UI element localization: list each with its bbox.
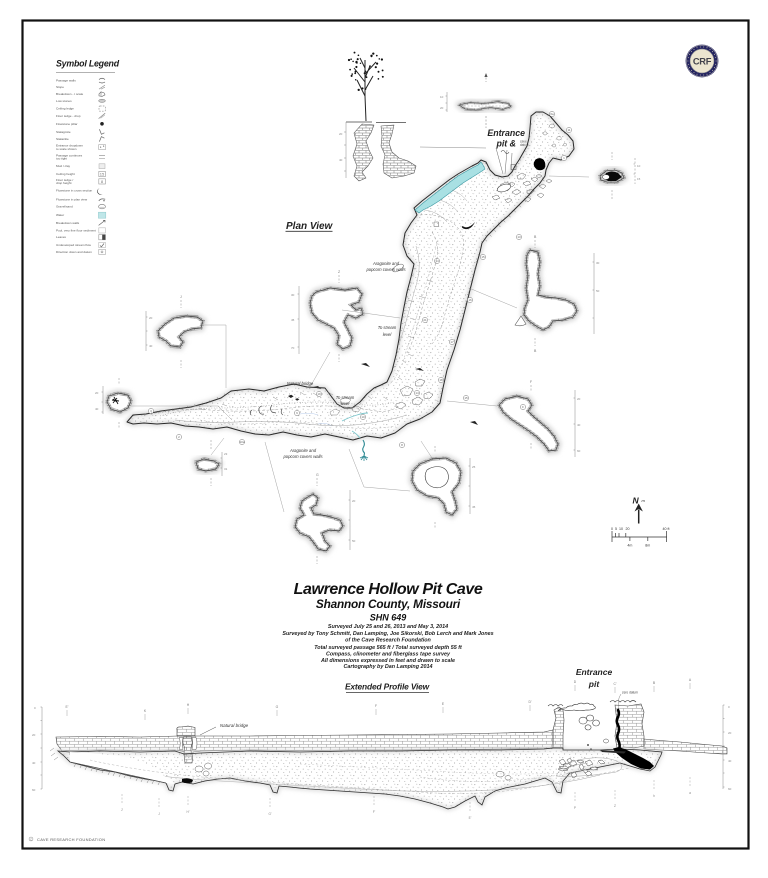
svg-text:10: 10 <box>440 95 444 99</box>
svg-text:N: N <box>633 496 640 506</box>
svg-text:popcorn covers walls: popcorn covers walls <box>365 267 406 272</box>
svg-text:10: 10 <box>619 527 623 531</box>
svg-text:Natural bridge: Natural bridge <box>287 381 314 386</box>
svg-text:of the Cave Research Foundatio: of the Cave Research Foundation <box>345 638 431 644</box>
svg-text:J': J' <box>121 808 124 812</box>
svg-text:too tight: too tight <box>56 157 67 161</box>
svg-text:CAVE RESEARCH FOUNDATION: CAVE RESEARCH FOUNDATION <box>37 837 105 842</box>
svg-text:Low stones: Low stones <box>56 99 72 103</box>
svg-text:C: C <box>30 837 32 841</box>
svg-text:40: 40 <box>95 407 99 411</box>
svg-text:20: 20 <box>577 397 581 401</box>
svg-text:Undeveloped stream flow: Undeveloped stream flow <box>56 243 92 247</box>
svg-text:Extended Profile View: Extended Profile View <box>345 682 430 692</box>
svg-text:E': E' <box>66 705 69 709</box>
svg-text:pit &: pit & <box>495 138 516 148</box>
svg-text:15: 15 <box>637 177 641 181</box>
svg-text:Aragonite and: Aragonite and <box>289 448 317 453</box>
svg-text:Total surveyed passage 565 ft: Total surveyed passage 565 ft / Total su… <box>314 645 462 651</box>
svg-text:50: 50 <box>352 539 356 543</box>
svg-text:P: P <box>574 806 576 810</box>
svg-text:45: 45 <box>472 505 476 509</box>
svg-text:16: 16 <box>468 298 472 302</box>
svg-text:18: 18 <box>439 378 443 382</box>
svg-text:25: 25 <box>472 465 476 469</box>
svg-text:45: 45 <box>291 318 295 322</box>
svg-text:Passage walls: Passage walls <box>56 79 76 83</box>
svg-text:Compass, clinometer and fiberg: Compass, clinometer and fiberglass tape … <box>326 652 451 658</box>
svg-text:40: 40 <box>339 158 343 162</box>
svg-text:SHN 649: SHN 649 <box>370 613 407 623</box>
svg-text:30: 30 <box>291 293 295 297</box>
svg-text:Ceiling height: Ceiling height <box>56 172 75 176</box>
svg-text:Floor ledge - drop: Floor ledge - drop <box>56 114 81 118</box>
svg-text:Mud / clay: Mud / clay <box>56 164 71 168</box>
svg-text:Stalactite: Stalactite <box>56 137 69 141</box>
svg-text:Flowstone in plan view: Flowstone in plan view <box>56 197 88 201</box>
svg-text:4m: 4m <box>627 544 632 548</box>
svg-text:15: 15 <box>464 396 468 400</box>
svg-text:19: 19 <box>317 392 321 396</box>
svg-text:8m: 8m <box>645 544 650 548</box>
svg-text:11: 11 <box>567 128 570 132</box>
svg-text:Entrance: Entrance <box>487 128 525 138</box>
svg-text:H': H' <box>187 810 190 814</box>
svg-text:Shannon County, Missouri: Shannon County, Missouri <box>316 597 461 611</box>
svg-text:40 ft: 40 ft <box>663 527 670 531</box>
svg-text:Water: Water <box>56 213 64 217</box>
svg-text:13: 13 <box>517 235 521 239</box>
svg-text:To stream: To stream <box>336 395 355 400</box>
svg-text:Direction down and datum: Direction down and datum <box>56 250 92 254</box>
svg-text:Pool, very fine floor sediment: Pool, very fine floor sediment <box>56 228 96 232</box>
svg-text:20: 20 <box>339 132 343 136</box>
svg-text:14: 14 <box>415 391 419 395</box>
svg-text:D': D' <box>528 700 531 704</box>
svg-text:a: a <box>689 791 691 795</box>
svg-text:G': G' <box>268 812 271 816</box>
svg-text:21: 21 <box>423 318 427 322</box>
svg-text:6a: 6a <box>550 112 554 116</box>
svg-text:10: 10 <box>361 415 365 419</box>
svg-text:5: 5 <box>615 527 617 531</box>
svg-text:F: F <box>375 704 377 708</box>
svg-text:0: 0 <box>611 527 613 531</box>
svg-text:31: 31 <box>224 467 228 471</box>
svg-text:40: 40 <box>32 761 36 765</box>
svg-text:E': E' <box>469 816 472 820</box>
svg-text:Natural bridge: Natural bridge <box>220 723 249 728</box>
svg-text:60: 60 <box>728 787 732 791</box>
svg-text:Cartography by Dan Lamping 201: Cartography by Dan Lamping 2014 <box>344 664 433 670</box>
svg-text:30: 30 <box>596 261 600 265</box>
svg-text:40: 40 <box>149 344 153 348</box>
svg-text:G: G <box>316 473 319 477</box>
svg-text:15: 15 <box>481 255 485 259</box>
svg-text:20: 20 <box>440 106 444 110</box>
svg-text:20: 20 <box>32 733 36 737</box>
svg-text:F: F <box>522 405 524 409</box>
svg-text:drop height: drop height <box>56 181 72 185</box>
svg-text:Aragonite and: Aragonite and <box>372 261 400 266</box>
svg-text:70: 70 <box>291 346 295 350</box>
svg-text:20: 20 <box>95 391 99 395</box>
svg-text:17: 17 <box>450 340 454 344</box>
svg-text:20: 20 <box>728 731 732 735</box>
svg-text:level: level <box>383 332 393 337</box>
svg-text:Leaves: Leaves <box>56 235 66 239</box>
svg-text:10a: 10a <box>239 440 244 444</box>
svg-text:F: F <box>530 380 532 384</box>
svg-text:Symbol Legend: Symbol Legend <box>56 59 120 69</box>
svg-text:Surveyed by Tony Schmitt, Dan: Surveyed by Tony Schmitt, Dan Lamping, J… <box>282 631 493 637</box>
svg-text:40: 40 <box>577 423 581 427</box>
svg-text:Entrance: Entrance <box>576 667 613 677</box>
svg-text:Ceiling ledge: Ceiling ledge <box>56 107 74 111</box>
svg-text:popcorn covers walls: popcorn covers walls <box>282 454 323 459</box>
svg-text:60: 60 <box>577 449 581 453</box>
svg-text:Plan View: Plan View <box>286 221 334 232</box>
svg-text:Flowstone in cross section: Flowstone in cross section <box>56 189 93 193</box>
svg-text:Stalagmite: Stalagmite <box>56 130 71 134</box>
svg-text:to scale shown: to scale shown <box>56 147 77 151</box>
svg-text:pit: pit <box>588 679 601 689</box>
svg-text:Breakdown - t scale: Breakdown - t scale <box>56 92 83 96</box>
svg-text:J: J <box>180 295 182 299</box>
svg-text:50: 50 <box>596 289 600 293</box>
svg-text:Surveyed July 25 and 26, 2013: Surveyed July 25 and 26, 2013 and May 3,… <box>328 624 448 630</box>
svg-text:zero datum: zero datum <box>622 691 638 695</box>
svg-text:C': C' <box>613 682 616 686</box>
svg-text:20: 20 <box>626 527 630 531</box>
svg-text:Breakdown walls: Breakdown walls <box>56 221 80 225</box>
svg-text:Z: Z <box>614 804 616 808</box>
svg-text:40: 40 <box>728 759 732 763</box>
svg-text:Flowstone pillar: Flowstone pillar <box>56 122 78 126</box>
svg-text:Slope: Slope <box>56 85 64 89</box>
svg-text:20: 20 <box>149 316 153 320</box>
svg-text:CRF: CRF <box>693 56 712 66</box>
svg-text:10: 10 <box>637 164 641 168</box>
svg-text:15: 15 <box>100 172 105 177</box>
svg-text:Lawrence Hollow Pit Cave: Lawrence Hollow Pit Cave <box>294 581 483 598</box>
svg-text:F': F' <box>373 810 376 814</box>
svg-text:23: 23 <box>224 452 228 456</box>
svg-text:h: h <box>653 794 655 798</box>
svg-text:Gravel/sand: Gravel/sand <box>56 205 73 209</box>
svg-text:To stream: To stream <box>378 325 397 330</box>
svg-text:20: 20 <box>352 499 356 503</box>
svg-text:60: 60 <box>32 788 36 792</box>
svg-text:G: G <box>276 705 279 709</box>
